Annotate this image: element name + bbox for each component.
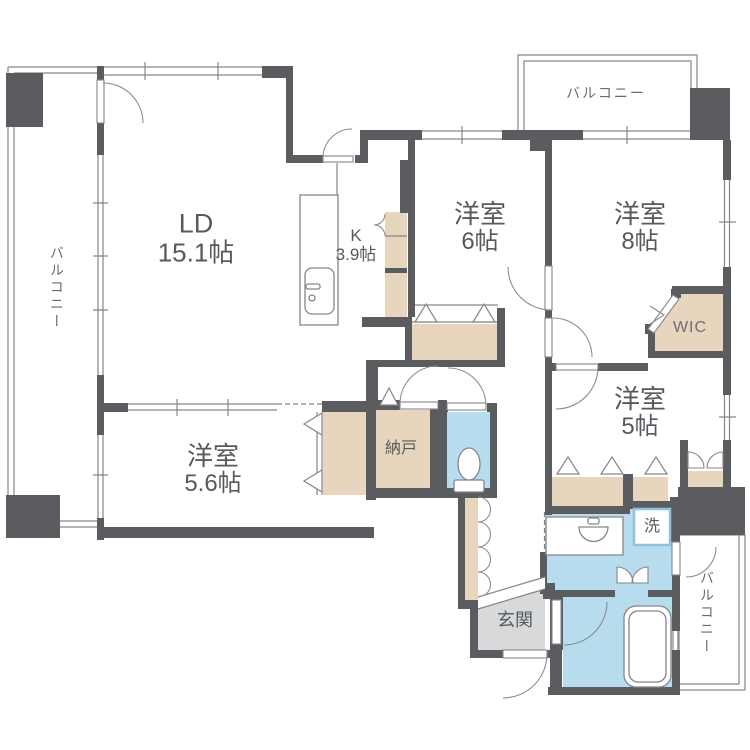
label-bedroom5: 洋室 5帖 <box>614 385 666 441</box>
bathtub <box>624 606 671 687</box>
label-kitchen: K 3.9帖 <box>336 226 377 264</box>
bedroom6-closet <box>412 324 498 360</box>
corner-closet-doors <box>688 452 723 468</box>
bedroom8-name: 洋室 <box>614 200 666 229</box>
ld-balcony-door <box>97 80 104 123</box>
bedroom5-size: 5帖 <box>614 414 666 441</box>
bedroom56-closet <box>323 412 368 495</box>
bedroom8-door <box>545 318 552 357</box>
label-storage: 納戸 <box>385 440 417 458</box>
label-balcony-top: バルコニー <box>566 86 646 102</box>
kitchen-cabinet <box>385 212 407 322</box>
bedroom5-name: 洋室 <box>614 385 666 414</box>
label-bedroom6: 洋室 6帖 <box>454 200 506 256</box>
label-bedroom56: 洋室 5.6帖 <box>184 442 241 498</box>
bedroom5-closet-right <box>633 477 668 503</box>
label-entrance: 玄関 <box>497 610 533 630</box>
floor-plan: LD 15.1帖 K 3.9帖 洋室 6帖 洋室 8帖 洋室 5帖 洋室 5.6… <box>0 0 750 750</box>
kitchen-size: 3.9帖 <box>336 245 377 264</box>
bedroom56-size: 5.6帖 <box>184 471 241 498</box>
bathroom-door <box>552 600 561 644</box>
balcony-right-door <box>672 542 680 575</box>
washbasin <box>546 517 623 555</box>
label-balcony-right: バルコニー <box>698 571 714 656</box>
kitchen-sink <box>300 195 338 325</box>
label-bedroom8: 洋室 8帖 <box>614 200 666 256</box>
toilet-door <box>447 403 486 410</box>
ld-name: LD <box>158 208 235 238</box>
label-balcony-left: バルコニー <box>48 246 64 331</box>
bedroom6-name: 洋室 <box>454 200 506 229</box>
bedroom6-size: 6帖 <box>454 229 506 256</box>
bedroom5-corner-closet <box>688 471 723 487</box>
entrance-door <box>503 650 547 658</box>
kitchen-door <box>323 156 353 162</box>
bedroom5-closet-left <box>552 477 623 508</box>
label-laundry: 洗 <box>644 518 660 536</box>
shoe-cabinet <box>465 497 478 602</box>
bedroom8-size: 8帖 <box>614 229 666 256</box>
storage-door <box>400 402 438 409</box>
label-ld: LD 15.1帖 <box>158 208 235 267</box>
label-wic: WIC <box>673 319 707 337</box>
shoe-cabinet-doors <box>478 497 490 597</box>
floor-plan-drawing <box>0 0 750 750</box>
kitchen-name: K <box>336 226 377 245</box>
bedroom6-door <box>545 266 552 310</box>
bedroom5-door <box>556 364 598 370</box>
ld-size: 15.1帖 <box>158 239 235 268</box>
bedroom56-name: 洋室 <box>184 442 241 471</box>
